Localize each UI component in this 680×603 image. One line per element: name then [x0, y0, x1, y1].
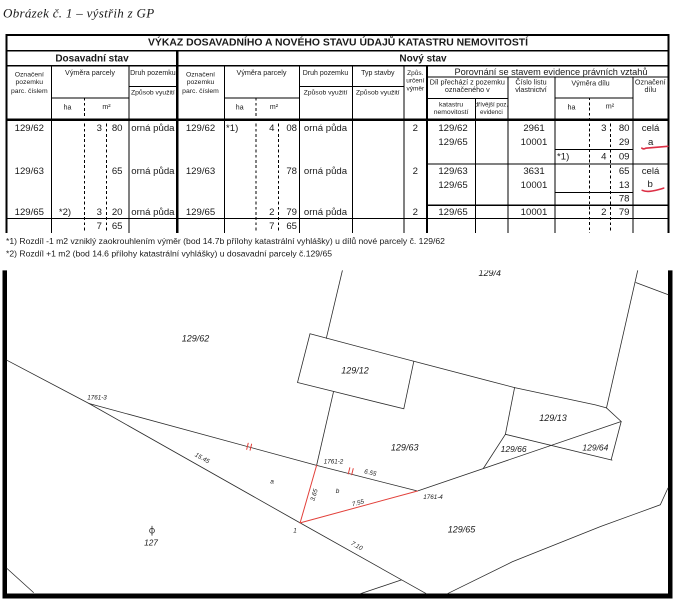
svg-text:7.10: 7.10 — [349, 540, 364, 552]
svg-text:79: 79 — [619, 207, 630, 218]
svg-text:10001: 10001 — [521, 180, 548, 191]
svg-text:orná půda: orná půda — [131, 207, 175, 218]
svg-text:*1): *1) — [557, 151, 569, 162]
svg-text:*2) Rozdíl +1 m2 (bod 14.6 pří: *2) Rozdíl +1 m2 (bod 14.6 přílohy katas… — [6, 249, 332, 259]
svg-text:parc. číslem: parc. číslem — [11, 88, 48, 95]
svg-text:*1): *1) — [226, 123, 238, 134]
svg-text:2: 2 — [413, 166, 418, 177]
svg-text:označeného v: označeného v — [445, 85, 490, 94]
svg-text:Typ stavby: Typ stavby — [361, 70, 395, 77]
svg-text:127: 127 — [144, 537, 158, 547]
svg-text:129/65: 129/65 — [15, 207, 44, 218]
svg-text:3: 3 — [97, 123, 102, 134]
svg-text:79: 79 — [286, 207, 297, 218]
svg-text:80: 80 — [619, 123, 630, 134]
svg-text:129/63: 129/63 — [391, 443, 419, 453]
svg-text:pozemku: pozemku — [187, 79, 215, 86]
svg-text:dřívější poz.: dřívější poz. — [475, 101, 509, 108]
svg-text:7.55: 7.55 — [351, 498, 365, 508]
svg-text:VÝKAZ DOSAVADNÍHO A NOVÉHO STA: VÝKAZ DOSAVADNÍHO A NOVÉHO STAVU ÚDAJŮ K… — [148, 35, 529, 49]
svg-text:129/64: 129/64 — [582, 443, 608, 453]
svg-text:Způsob využití: Způsob využití — [131, 89, 175, 97]
svg-text:6.55: 6.55 — [363, 468, 377, 478]
svg-text:a: a — [648, 137, 654, 148]
svg-text:129/62: 129/62 — [438, 123, 467, 134]
svg-text:129/62: 129/62 — [15, 123, 44, 134]
svg-text:4: 4 — [269, 123, 275, 134]
svg-text:*2): *2) — [59, 207, 71, 218]
svg-text:129/4: 129/4 — [479, 268, 502, 278]
svg-text:20: 20 — [112, 207, 123, 218]
svg-text:orná půda: orná půda — [304, 166, 348, 177]
svg-text:Porovnání se stavem evidence p: Porovnání se stavem evidence právních vz… — [454, 67, 647, 77]
svg-text:*1) Rozdíl -1 m2 vzniklý zaokr: *1) Rozdíl -1 m2 vzniklý zaokrouhlením v… — [6, 236, 445, 246]
svg-text:ha: ha — [236, 105, 244, 112]
svg-text:129/65: 129/65 — [438, 180, 467, 191]
svg-text:ha: ha — [568, 103, 576, 112]
svg-text:2: 2 — [269, 207, 274, 218]
svg-text:celá: celá — [642, 123, 660, 134]
svg-text:určení: určení — [406, 78, 424, 85]
svg-text:orná půda: orná půda — [131, 123, 175, 134]
svg-text:celá: celá — [642, 166, 660, 177]
svg-text:Druh pozemku: Druh pozemku — [130, 70, 176, 77]
svg-text:b: b — [648, 179, 653, 190]
svg-text:ha: ha — [64, 105, 72, 112]
svg-text:65: 65 — [286, 221, 297, 232]
svg-text:m²: m² — [270, 104, 279, 111]
svg-text:vlastnictví: vlastnictví — [515, 85, 547, 94]
svg-text:10001: 10001 — [521, 207, 548, 218]
svg-text:4: 4 — [601, 151, 607, 162]
svg-text:Výměra dílu: Výměra dílu — [571, 78, 609, 87]
svg-text:3.65: 3.65 — [310, 488, 320, 502]
svg-text:15.45: 15.45 — [193, 451, 211, 465]
svg-text:10001: 10001 — [521, 137, 548, 148]
svg-text:65: 65 — [112, 221, 123, 232]
svg-text:b: b — [336, 488, 340, 495]
svg-text:65: 65 — [112, 166, 123, 177]
svg-text:Nový stav: Nový stav — [399, 54, 447, 65]
svg-text:pozemku: pozemku — [16, 79, 44, 86]
svg-text:nemovitostí: nemovitostí — [434, 109, 469, 116]
svg-text:129/62: 129/62 — [182, 334, 210, 344]
svg-text:3631: 3631 — [523, 166, 544, 177]
svg-text:katastru: katastru — [439, 101, 463, 108]
svg-text:1: 1 — [293, 528, 297, 535]
svg-text:parc. číslem: parc. číslem — [182, 88, 219, 95]
svg-text:1761-3: 1761-3 — [87, 395, 107, 402]
svg-text:výměr: výměr — [406, 85, 425, 92]
svg-text:Dosavadní stav: Dosavadní stav — [55, 54, 129, 65]
svg-text:Druh pozemku: Druh pozemku — [303, 70, 349, 77]
svg-text:78: 78 — [286, 166, 297, 177]
svg-text:129/12: 129/12 — [341, 366, 369, 376]
svg-text:7: 7 — [269, 221, 274, 232]
svg-text:Způs.: Způs. — [407, 69, 423, 77]
svg-text:129/65: 129/65 — [186, 207, 215, 218]
svg-text:dílu: dílu — [645, 85, 657, 94]
svg-text:129/62: 129/62 — [186, 123, 215, 134]
svg-text:29: 29 — [619, 137, 630, 148]
svg-text:Způsob využití: Způsob využití — [356, 89, 400, 97]
svg-text:orná půda: orná půda — [304, 123, 348, 134]
svg-text:65: 65 — [619, 166, 630, 177]
svg-text:Výměra parcely: Výměra parcely — [237, 68, 287, 77]
svg-text:129/13: 129/13 — [539, 413, 567, 423]
svg-text:3: 3 — [97, 207, 102, 218]
svg-text:7: 7 — [97, 221, 102, 232]
svg-text:1761-4: 1761-4 — [423, 494, 443, 501]
svg-text:2961: 2961 — [523, 123, 544, 134]
svg-text:m²: m² — [102, 104, 111, 111]
svg-text:78: 78 — [619, 194, 630, 205]
svg-text:129/65: 129/65 — [448, 525, 477, 535]
svg-text:129/65: 129/65 — [438, 137, 467, 148]
svg-text:orná půda: orná půda — [131, 166, 175, 177]
svg-text:129/65: 129/65 — [438, 207, 467, 218]
svg-text:09: 09 — [619, 151, 630, 162]
svg-text:Označení: Označení — [186, 71, 215, 78]
svg-text:Výměra parcely: Výměra parcely — [65, 68, 115, 77]
svg-text:129/63: 129/63 — [15, 166, 44, 177]
svg-text:Označení: Označení — [15, 71, 44, 78]
svg-text:Způsob využití: Způsob využití — [304, 89, 348, 97]
svg-text:13: 13 — [619, 180, 630, 191]
svg-text:orná půda: orná půda — [304, 207, 348, 218]
svg-text:2: 2 — [413, 123, 418, 134]
svg-text:129/63: 129/63 — [186, 166, 215, 177]
svg-text:80: 80 — [112, 123, 123, 134]
svg-text:129/66: 129/66 — [501, 444, 527, 454]
svg-text:a: a — [270, 479, 274, 486]
svg-text:1761-2: 1761-2 — [324, 458, 344, 465]
svg-text:2: 2 — [413, 207, 418, 218]
svg-text:129/63: 129/63 — [438, 166, 467, 177]
svg-text:Obrázek č. 1 – výstřih z GP: Obrázek č. 1 – výstřih z GP — [3, 6, 154, 21]
svg-text:08: 08 — [286, 123, 297, 134]
svg-text:2: 2 — [601, 207, 606, 218]
svg-text:m²: m² — [606, 102, 615, 111]
svg-text:3: 3 — [601, 123, 606, 134]
svg-text:evidenci: evidenci — [480, 109, 503, 116]
